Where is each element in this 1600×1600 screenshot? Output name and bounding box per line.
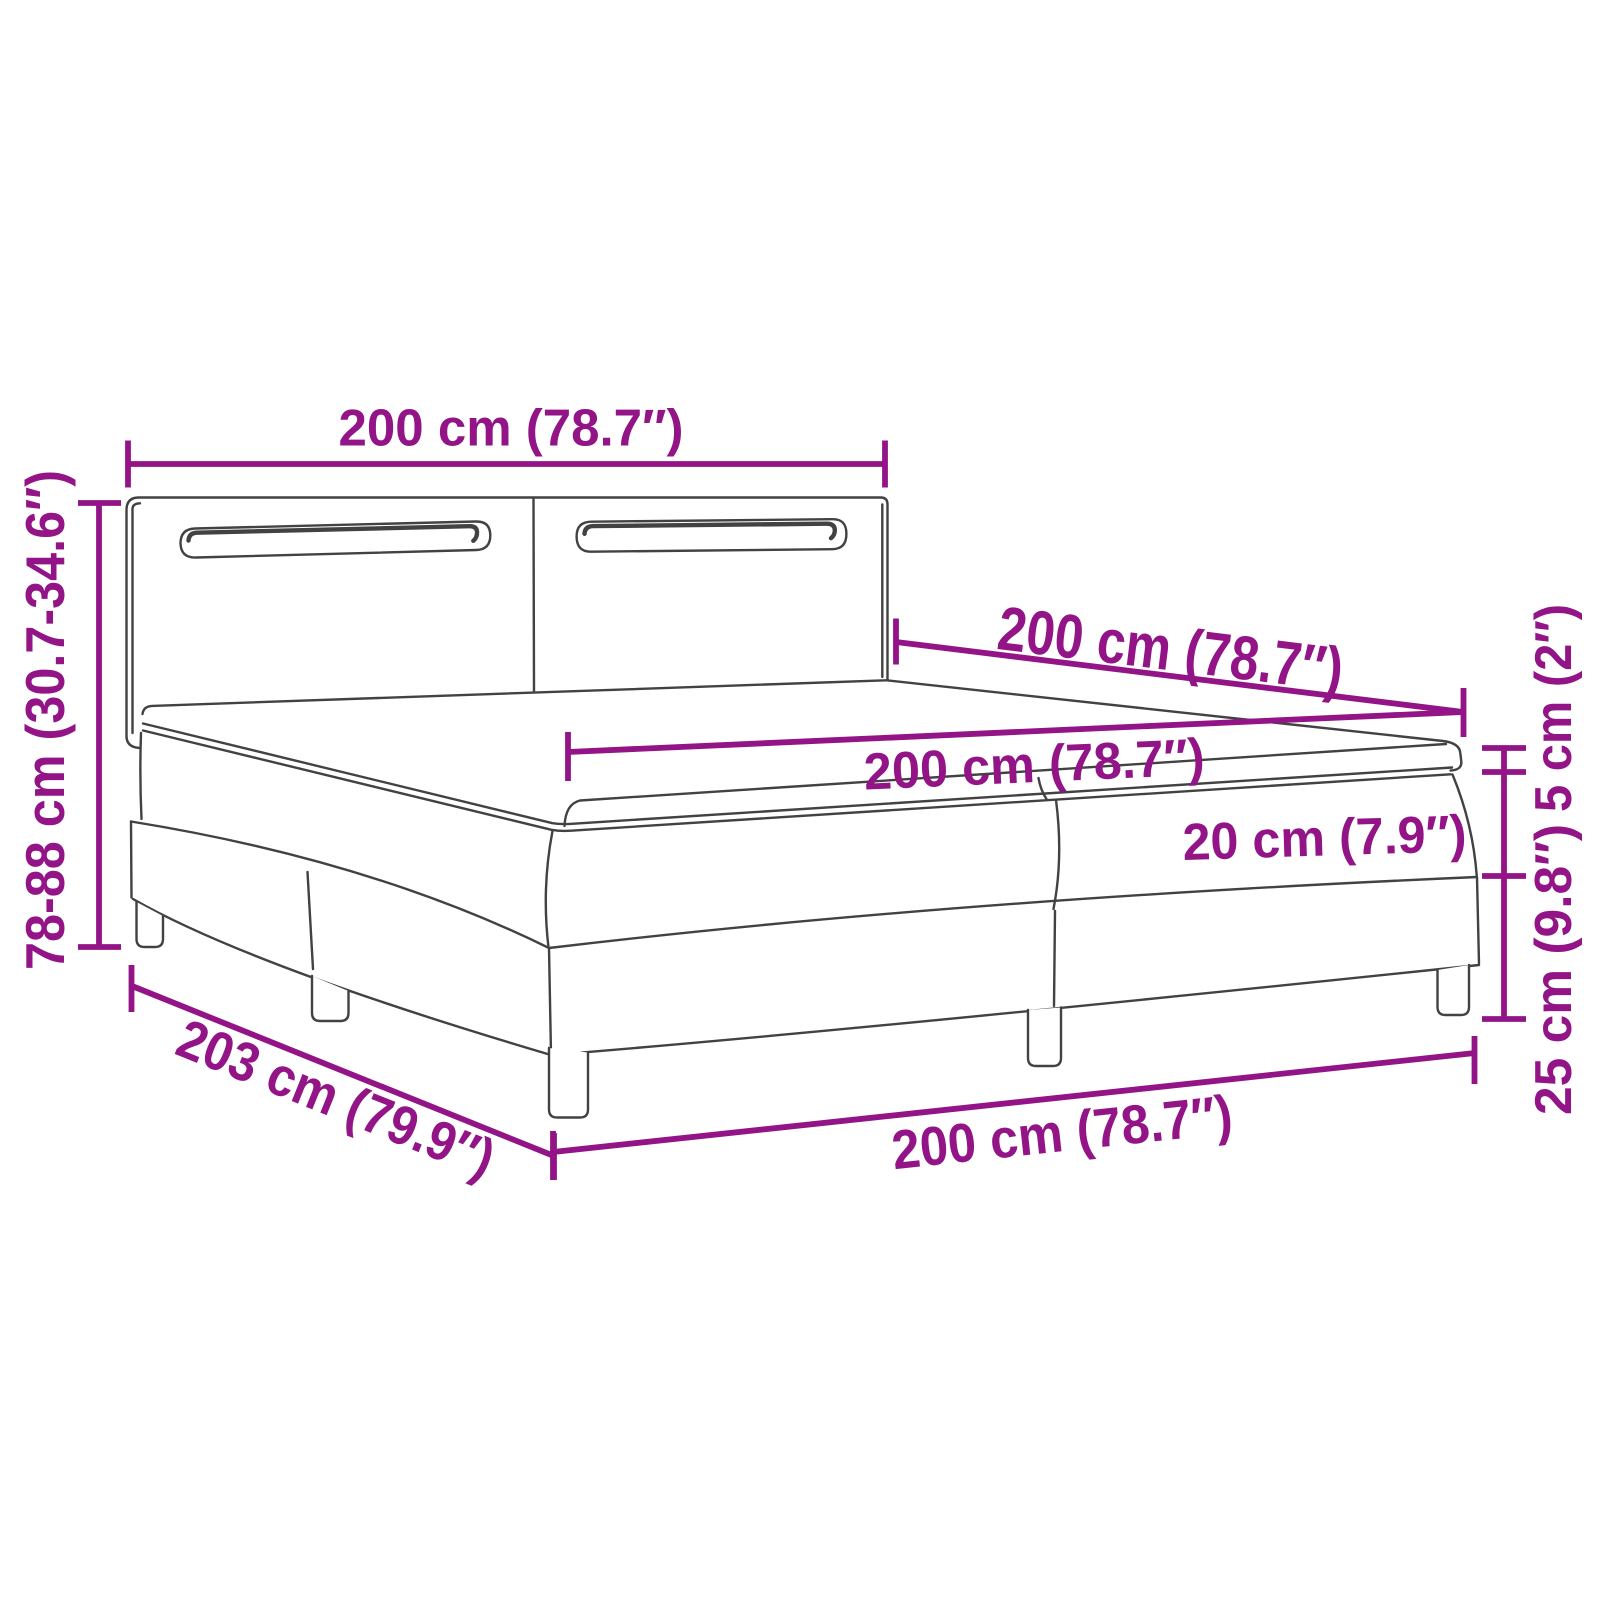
svg-text:25 cm (9.8″): 25 cm (9.8″) xyxy=(1525,824,1583,1115)
svg-text:78-88 cm (30.7-34.6″): 78-88 cm (30.7-34.6″) xyxy=(14,470,76,970)
svg-text:5 cm (2″): 5 cm (2″) xyxy=(1525,604,1583,812)
svg-text:20 cm (7.9″): 20 cm (7.9″) xyxy=(1182,805,1468,872)
svg-text:200 cm (78.7″): 200 cm (78.7″) xyxy=(339,400,684,458)
